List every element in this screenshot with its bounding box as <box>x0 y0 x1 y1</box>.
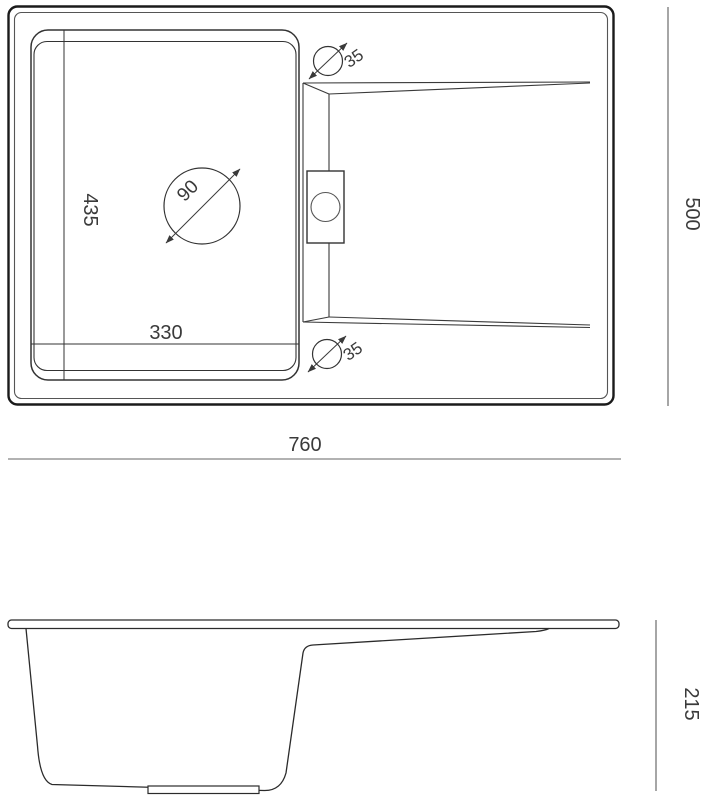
drainboard-top-inner-edge <box>329 83 590 94</box>
bowl-depth-label: 435 <box>79 193 101 226</box>
overall-width-dimension: 760 <box>8 434 621 459</box>
drain-fitting-profile <box>148 786 259 794</box>
drainboard-top-corner <box>303 83 329 94</box>
faucet-mount <box>307 171 344 243</box>
drain-diameter-label: 90 <box>173 176 203 206</box>
overall-depth-label: 500 <box>681 197 703 230</box>
technical-drawing-page: 90 435 330 35 <box>0 0 704 800</box>
drainboard-top-outer-edge <box>303 82 590 83</box>
overall-width-label: 760 <box>288 434 321 456</box>
bowl-width-label: 330 <box>149 322 182 344</box>
drainboard-bottom-outer-edge <box>303 322 590 328</box>
sink-profile-outline <box>26 629 549 791</box>
faucet-mount-plate <box>307 171 344 243</box>
tap-hole-bottom: 35 <box>308 336 366 372</box>
drain-hole-circle <box>164 168 240 244</box>
overall-depth-dimension: 500 <box>668 7 703 406</box>
overall-height-label: 215 <box>680 687 702 720</box>
bowl-top-view: 90 435 330 <box>31 30 299 380</box>
top-view: 90 435 330 35 <box>9 7 614 405</box>
drainboard-bottom-corner <box>303 317 329 322</box>
sink-drawing-svg: 90 435 330 35 <box>0 0 704 800</box>
tap-hole-top-label: 35 <box>341 45 367 71</box>
rim-profile <box>8 620 619 629</box>
side-view <box>8 620 619 794</box>
tap-hole-bottom-label: 35 <box>340 338 366 364</box>
drainboard-top-view <box>303 82 590 328</box>
tap-hole-top: 35 <box>309 43 367 79</box>
drain-diameter-line <box>166 169 240 243</box>
tap-hole-bottom-diameter-line <box>308 336 346 372</box>
drainboard-bottom-inner-edge <box>329 317 590 325</box>
overall-height-dimension: 215 <box>656 620 702 791</box>
tap-hole-top-diameter-line <box>309 43 347 79</box>
